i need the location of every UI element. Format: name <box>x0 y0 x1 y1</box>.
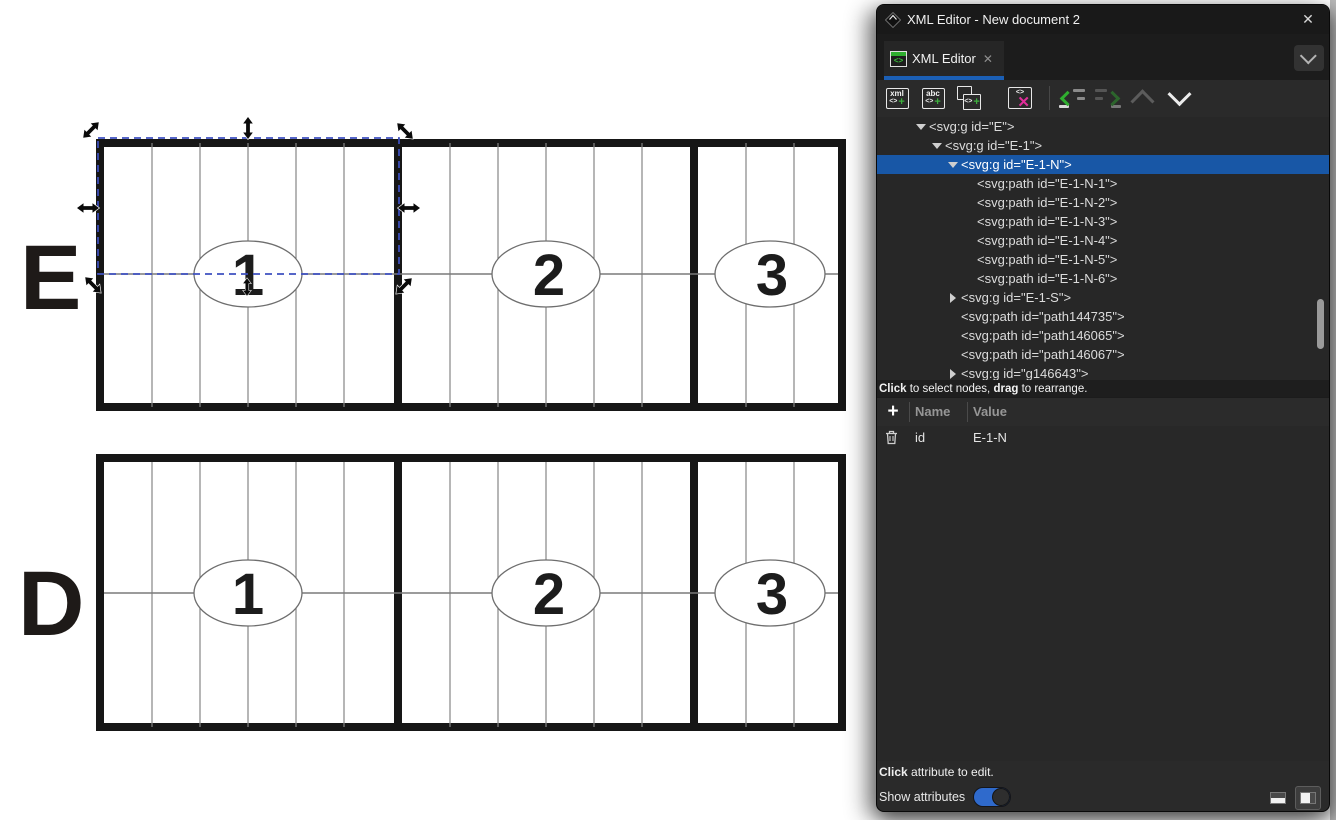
delete-node-button[interactable]: <> ✕ <box>1005 83 1035 113</box>
tree-node-text: <svg:g id="E-1"> <box>945 138 1042 153</box>
tree-node-text: <svg:g id="E-1-S"> <box>961 290 1071 305</box>
tree-node-text: <svg:g id="g146643"> <box>961 366 1088 380</box>
tab-close-icon[interactable]: ✕ <box>983 52 993 66</box>
new-text-node-icon: abc <>+ <box>922 88 945 109</box>
row-D-label: D <box>18 553 84 655</box>
row-E-group[interactable]: E 1 2 3 <box>20 139 842 411</box>
scale-handle-middle-left[interactable] <box>77 203 99 213</box>
expander-triangle-icon[interactable] <box>945 369 961 379</box>
new-element-node-button[interactable]: xml <>+ <box>882 83 912 113</box>
tab-strip: <> XML Editor ✕ <box>877 34 1329 80</box>
layout-vertical-icon <box>1300 792 1316 804</box>
add-attribute-button[interactable]: + <box>881 401 905 423</box>
dialog-title: XML Editor - New document 2 <box>907 12 1080 27</box>
unindent-node-icon <box>1059 87 1085 109</box>
attribute-name[interactable]: id <box>915 430 925 445</box>
expander-triangle-icon[interactable] <box>945 293 961 303</box>
row-E-section-1-number: 1 <box>232 243 264 308</box>
show-attributes-toggle[interactable] <box>973 787 1011 807</box>
row-E-section-3-number: 3 <box>756 243 788 308</box>
tree-hint-text: Click to select nodes, drag to rearrange… <box>877 380 1329 397</box>
tree-node-E-1-N-6[interactable]: <svg:path id="E-1-N-6"> <box>877 269 1329 288</box>
scale-handle-top-center[interactable] <box>243 117 253 139</box>
tree-node-E-1[interactable]: <svg:g id="E-1"> <box>877 136 1329 155</box>
tree-node-E-1-N-1[interactable]: <svg:path id="E-1-N-1"> <box>877 174 1329 193</box>
chevron-up-icon <box>1130 89 1154 113</box>
unindent-node-button[interactable] <box>1057 83 1087 113</box>
tree-node-text: <svg:path id="path144735"> <box>961 309 1125 324</box>
new-text-node-button[interactable]: abc <>+ <box>918 83 948 113</box>
tree-node-path146065[interactable]: <svg:path id="path146065"> <box>877 326 1329 345</box>
row-E-section-2-number: 2 <box>533 243 565 308</box>
show-attributes-label: Show attributes <box>879 790 965 804</box>
tree-node-text: <svg:path id="E-1-N-4"> <box>977 233 1117 248</box>
new-element-node-icon: xml <>+ <box>886 88 909 109</box>
column-separator <box>909 402 910 422</box>
chevron-down-icon <box>1300 47 1317 64</box>
tree-node-text: <svg:path id="path146065"> <box>961 328 1125 343</box>
layout-horizontal-icon <box>1270 792 1286 804</box>
tree-node-E[interactable]: <svg:g id="E"> <box>877 117 1329 136</box>
tree-node-E-1-N-5[interactable]: <svg:path id="E-1-N-5"> <box>877 250 1329 269</box>
row-D-section-1-number: 1 <box>232 562 264 627</box>
attribute-row[interactable]: id E-1-N <box>877 426 1329 450</box>
tree-node-path146067[interactable]: <svg:path id="path146067"> <box>877 345 1329 364</box>
chevron-down-icon <box>1167 82 1191 106</box>
row-E-label: E <box>20 227 81 329</box>
dialog-titlebar[interactable]: XML Editor - New document 2 ✕ <box>877 5 1329 34</box>
tree-node-text: <svg:g id="E"> <box>929 119 1014 134</box>
tree-node-E-1-S[interactable]: <svg:g id="E-1-S"> <box>877 288 1329 307</box>
scale-handle-top-right[interactable] <box>394 120 416 142</box>
attributes-empty-area <box>877 450 1329 761</box>
tree-node-E-1-N-4[interactable]: <svg:path id="E-1-N-4"> <box>877 231 1329 250</box>
toolbar-separator <box>1049 86 1050 110</box>
tree-node-text: <svg:path id="path146067"> <box>961 347 1125 362</box>
attributes-header: + Name Value <box>877 397 1329 427</box>
expander-triangle-icon[interactable] <box>929 143 945 149</box>
indent-node-button[interactable] <box>1093 83 1123 113</box>
row-D-section-2-number: 2 <box>533 562 565 627</box>
trash-icon[interactable] <box>885 430 898 445</box>
row-D-group[interactable]: D 1 2 3 <box>18 454 842 731</box>
name-column-header: Name <box>915 404 950 419</box>
xml-editor-tab-icon: <> <box>890 51 907 67</box>
delete-node-icon: <> ✕ <box>1008 87 1032 109</box>
tree-node-text: <svg:path id="E-1-N-5"> <box>977 252 1117 267</box>
xml-editor-dialog[interactable]: XML Editor - New document 2 ✕ <> XML Edi… <box>876 4 1330 812</box>
tab-xml-editor[interactable]: <> XML Editor ✕ <box>884 41 1004 76</box>
tree-scrollbar-thumb[interactable] <box>1317 299 1324 349</box>
layout-vertical-button[interactable] <box>1295 786 1321 810</box>
xml-node-tree[interactable]: <svg:g id="E"> <svg:g id="E-1"> <svg:g i… <box>877 117 1329 380</box>
column-separator <box>967 402 968 422</box>
duplicate-node-button[interactable]: <>+ <box>954 83 984 113</box>
tab-label: XML Editor <box>912 51 976 66</box>
tree-node-g146643[interactable]: <svg:g id="g146643"> <box>877 364 1329 380</box>
row-D-section-3-number: 3 <box>756 562 788 627</box>
attribute-hint-text: Click attribute to edit. <box>879 765 994 779</box>
move-node-up-button[interactable] <box>1127 83 1157 113</box>
layout-horizontal-button[interactable] <box>1265 786 1291 810</box>
xml-toolbar: xml <>+ abc <>+ <>+ <> ✕ <box>877 80 1329 117</box>
tree-scrollbar[interactable] <box>1315 117 1326 380</box>
tree-node-text: <svg:path id="E-1-N-2"> <box>977 195 1117 210</box>
duplicate-node-icon: <>+ <box>957 86 981 110</box>
indent-node-icon <box>1095 87 1121 109</box>
toggle-knob <box>992 788 1010 806</box>
move-node-down-button[interactable] <box>1164 83 1194 113</box>
tree-node-text: <svg:path id="E-1-N-3"> <box>977 214 1117 229</box>
value-column-header: Value <box>973 404 1007 419</box>
close-icon[interactable]: ✕ <box>1299 10 1317 28</box>
tree-node-text: <svg:path id="E-1-N-6"> <box>977 271 1117 286</box>
expander-triangle-icon[interactable] <box>945 162 961 168</box>
tree-node-text: <svg:path id="E-1-N-1"> <box>977 176 1117 191</box>
attribute-value[interactable]: E-1-N <box>973 430 1007 445</box>
inkscape-logo-icon <box>885 12 901 28</box>
tree-node-E-1-N-selected[interactable]: <svg:g id="E-1-N"> <box>877 155 1329 174</box>
tree-node-text: <svg:g id="E-1-N"> <box>961 157 1072 172</box>
expander-triangle-icon[interactable] <box>913 124 929 130</box>
window-edge-strip <box>1330 0 1336 820</box>
tree-node-E-1-N-3[interactable]: <svg:path id="E-1-N-3"> <box>877 212 1329 231</box>
tree-node-E-1-N-2[interactable]: <svg:path id="E-1-N-2"> <box>877 193 1329 212</box>
tree-node-path144735[interactable]: <svg:path id="path144735"> <box>877 307 1329 326</box>
tab-overflow-button[interactable] <box>1294 45 1324 71</box>
plus-icon: + <box>887 402 898 422</box>
